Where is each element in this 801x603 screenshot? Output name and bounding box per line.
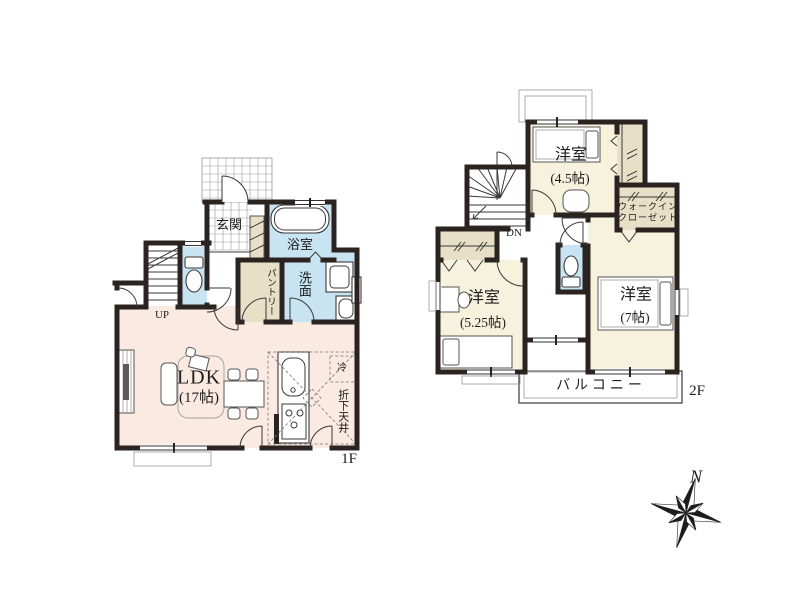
balcony-label: バルコニー [556,380,646,395]
dining-chair [228,408,240,419]
dining-chair [246,369,258,380]
bedroom2-label: 洋室 [468,291,500,308]
bedroom1-size-label: (4.5帖) [550,172,589,186]
bedroom1-label: 洋室 [555,148,587,165]
bedroom3-label: 洋室 [620,288,652,305]
shoe-cabinet [250,216,264,258]
wic-label-line2: クローゼット [618,213,678,222]
floor2-plan [429,90,688,403]
stairs-2f [467,167,528,226]
pantry-label: パントリー [264,268,274,316]
stairs-1f [146,247,180,300]
sofa [161,363,177,405]
ldk-size-label: (17帖) [179,391,219,407]
stairs-up-label: UP [155,310,169,322]
closet2-floor [438,229,497,260]
floorplan-page: 玄関 浴室 洗面 パントリー UP LDK (17帖) 冷 折下天井 DS PS… [0,0,801,603]
floor1-plan [115,158,361,466]
bedroom2-size-label: (5.25帖) [460,316,506,330]
washroom-label: 洗面 [297,271,311,297]
compass-north-label: N [690,468,702,487]
desk-5.25 [440,287,459,312]
dining-table [224,381,264,407]
stairs-down-label: DN [506,228,522,240]
window-sill [680,289,688,316]
toilet-icon-1f [185,257,203,292]
bedroom3-door [562,218,588,244]
closet1-floor [617,122,645,185]
genkan-label: 玄関 [216,218,242,232]
fridge-label: 冷 [337,364,347,375]
dropped-ceiling-label: 折下天井 [336,389,348,433]
ldk-label: LDK [177,368,221,389]
toilet-icon-2f [562,256,580,287]
ottoman-4.5 [563,190,589,212]
bedroom3-size-label: (7帖) [620,311,649,325]
floorplan-drawing [0,0,801,603]
dining-chair [228,369,240,380]
bathtub-icon [271,205,329,233]
compass-rose [642,469,730,557]
floor1-label: 1F [341,452,357,468]
duct-label-right: DS [353,284,359,296]
wic-label-line1: ウォークイン [618,202,678,211]
window-sill [462,376,520,384]
side-chair [185,347,196,358]
dining-chair [246,408,258,419]
floor2-label: 2F [689,384,705,400]
window-sill [134,452,211,466]
pantry-floor [238,260,282,322]
side-door [118,288,137,307]
eaves-outline [519,90,592,122]
bath-label: 浴室 [287,238,313,252]
duct-label-kitchen: PS [274,431,280,443]
washer-space-icon [326,262,353,292]
